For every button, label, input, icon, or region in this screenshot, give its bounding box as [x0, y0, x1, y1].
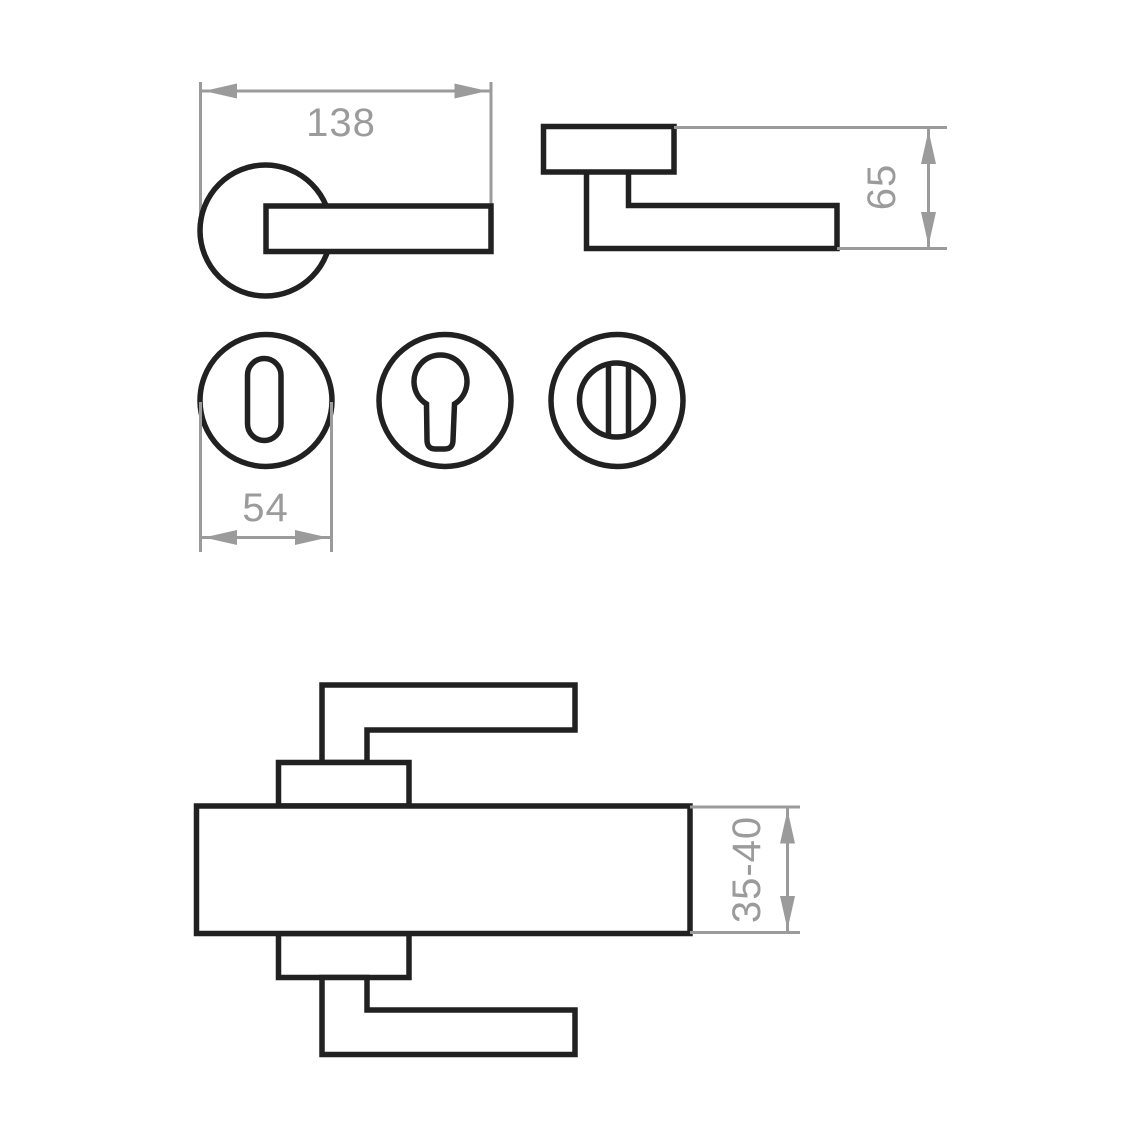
dim-label-door-thickness: 35-40: [725, 816, 769, 923]
dim-label-handle-projection: 65: [860, 164, 904, 211]
door-handle-dimension-drawing: 138 65: [0, 0, 1140, 1140]
wc-turn-knob-outline: [580, 363, 654, 437]
door-leaf-hatched: [197, 806, 691, 934]
rose-section-bottom: [279, 934, 410, 978]
technical-drawing-page: 138 65: [0, 0, 1140, 1140]
lever-section-bottom: [322, 978, 575, 1055]
lever-side-profile: [587, 171, 838, 249]
arrow-down-icon: [921, 212, 936, 246]
arrow-down-icon: [780, 896, 795, 930]
wc-turn-escutcheon: [551, 335, 683, 467]
arrow-left-icon: [204, 530, 237, 545]
handle-front-view: 138: [200, 82, 491, 296]
rose-section-top: [279, 763, 410, 807]
door-cross-section-view: 35-40: [197, 685, 801, 1055]
arrow-up-icon: [921, 131, 936, 165]
dim-label-rose-diameter: 54: [242, 486, 289, 530]
keyhole-slot-icon: [248, 359, 282, 441]
handle-side-view: 65: [544, 127, 948, 249]
cylinder-escutcheon: [379, 335, 511, 467]
arrow-left-icon: [204, 84, 237, 99]
rose-side-profile: [544, 127, 675, 173]
arrow-right-icon: [295, 530, 328, 545]
arrow-up-icon: [780, 810, 795, 844]
lever-section-top: [322, 685, 575, 763]
keyhole-escutcheon: [200, 335, 332, 467]
escutcheon-row: 54: [200, 335, 683, 553]
lever-front: [266, 206, 491, 252]
dim-label-handle-length: 138: [306, 101, 376, 145]
arrow-right-icon: [455, 84, 488, 99]
